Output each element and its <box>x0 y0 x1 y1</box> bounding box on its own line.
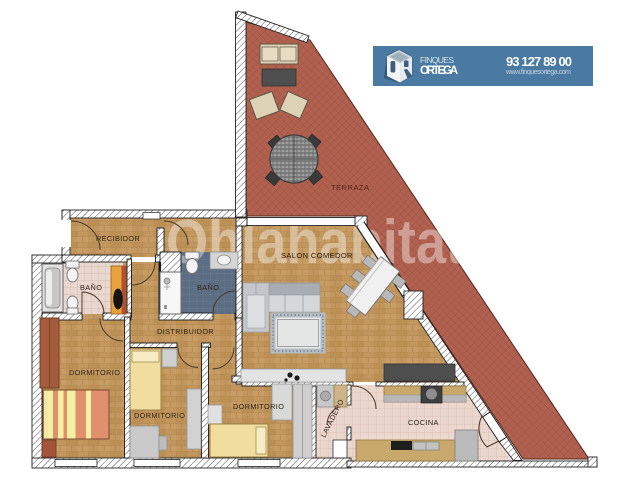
svg-text:93 127 89 00: 93 127 89 00 <box>506 54 572 69</box>
svg-text:ORTEGA: ORTEGA <box>420 65 458 77</box>
svg-text:RECIBIDOR: RECIBIDOR <box>96 234 140 243</box>
svg-text:FINQUES: FINQUES <box>420 55 454 65</box>
svg-text:SALON COMEDOR: SALON COMEDOR <box>281 251 353 260</box>
svg-text:DORMITORIO: DORMITORIO <box>134 411 185 420</box>
svg-text:DISTRIBUIDOR: DISTRIBUIDOR <box>157 327 214 336</box>
svg-text:COCINA: COCINA <box>408 418 439 427</box>
svg-text:DORMITORIO: DORMITORIO <box>69 368 120 377</box>
svg-text:www.finquesortega.com: www.finquesortega.com <box>505 69 571 76</box>
svg-text:BAÑO: BAÑO <box>80 283 102 292</box>
svg-text:TERRAZA: TERRAZA <box>331 183 370 192</box>
svg-text:BAÑO: BAÑO <box>197 283 219 292</box>
svg-text:DORMITORIO: DORMITORIO <box>233 402 284 411</box>
